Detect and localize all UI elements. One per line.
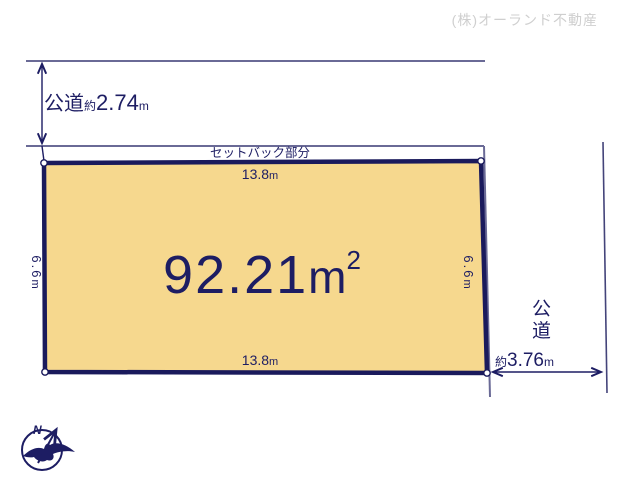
- plot-left-depth-label: 6.6m: [28, 250, 44, 294]
- plot-area-label: 92.21m2: [32, 244, 492, 306]
- plot-left-depth-value: 6.6: [29, 255, 44, 279]
- plot-top-width-unit: m: [269, 170, 278, 182]
- setback-label: セットバック部分: [30, 146, 490, 160]
- plot-area-unit: m: [308, 251, 346, 303]
- top-road-name: 公道: [44, 87, 84, 116]
- compass-north-label: N: [33, 423, 42, 437]
- company-credit: (株)オーランド不動産: [452, 10, 598, 30]
- plot-right-depth-label: 6.6m: [460, 250, 476, 294]
- plot-top-width-label: 13.8m: [30, 166, 490, 182]
- right-road-unit: m: [544, 355, 554, 369]
- plot-left-depth-unit: m: [29, 279, 41, 288]
- right-road-dimension-label: 約 3.76 m: [495, 350, 595, 372]
- plot-right-depth-value: 6.6: [461, 255, 476, 279]
- top-road-value: 2.74: [96, 90, 139, 116]
- right-road-name: 公道: [531, 299, 552, 343]
- right-road-boundary-line: [603, 142, 607, 393]
- right-road-value: 3.76: [507, 350, 544, 372]
- right-road-approx: 約: [495, 353, 507, 370]
- plot-top-width-value: 13.8: [242, 166, 269, 182]
- compass-bird-icon: [23, 443, 75, 461]
- corner-marker-bottom-left: [42, 369, 48, 375]
- top-road-label: 公道 約 2.74 m: [44, 87, 149, 116]
- plot-right-depth-unit: m: [461, 279, 473, 288]
- plot-area-value: 92.21: [163, 245, 308, 305]
- plot-area-exponent: 2: [347, 245, 361, 275]
- top-road-approx: 約: [84, 97, 96, 114]
- top-road-unit: m: [139, 99, 149, 113]
- plot-bottom-width-label: 13.8m: [30, 352, 490, 368]
- corner-marker-bottom-right: [484, 370, 490, 376]
- compass-north-icon: N: [22, 423, 75, 470]
- land-plot-diagram: N: [0, 0, 640, 480]
- plot-bottom-width-unit: m: [269, 356, 278, 368]
- plot-bottom-width-value: 13.8: [242, 352, 269, 368]
